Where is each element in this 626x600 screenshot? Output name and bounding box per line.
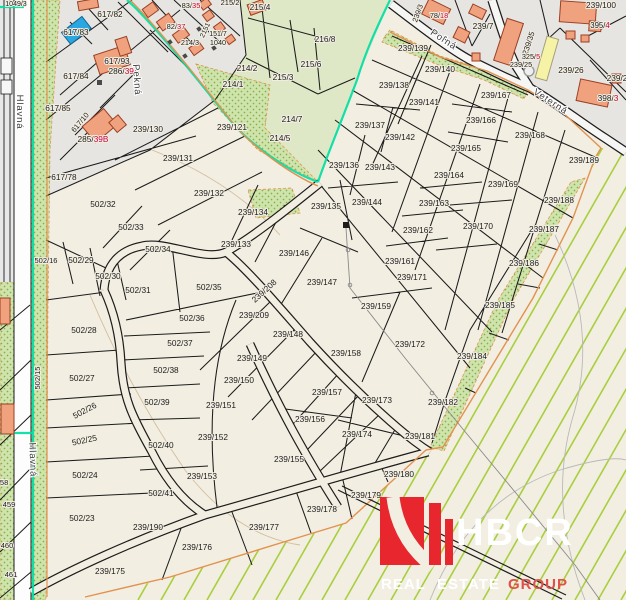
parcel-label: 83/35 — [182, 1, 201, 10]
parcel-label: 502/33 — [118, 222, 144, 232]
parcel-label: 239/161 — [385, 256, 415, 266]
cadastral-map: 1049/3617/82617/83617/93286/39A617/84617… — [0, 0, 626, 600]
parcel-label: 214/2 — [237, 63, 258, 73]
parcel-label: 239/179 — [351, 490, 381, 500]
street-label: Pekná — [130, 64, 143, 96]
parcel-label: 502/38 — [153, 365, 179, 375]
parcel-label: 239/135 — [311, 201, 341, 211]
parcel-label: 239/178 — [307, 504, 337, 514]
parcel-label: 239/180 — [384, 469, 414, 479]
parcel-label: 239/159 — [361, 301, 391, 311]
parcel-label: 461 — [5, 570, 18, 579]
parcel-label: 239/140 — [425, 64, 455, 74]
parcel-label: 239/182 — [428, 397, 458, 407]
parcel-label: 239/174 — [342, 429, 372, 439]
parcel-label: 239/175 — [95, 566, 125, 576]
parcel-label: 239/157 — [312, 387, 342, 397]
parcel-label: 239/190 — [133, 522, 163, 532]
parcel-label: 239/163 — [419, 198, 449, 208]
parcel-label: 617/82 — [97, 9, 123, 19]
parcel-label: 239/167 — [481, 90, 511, 100]
parcel-label: 239/151 — [206, 400, 236, 410]
parcel-label: 502/28 — [71, 325, 97, 335]
parcel-label: 239/146 — [279, 248, 309, 258]
parcel-label: 502/35 — [196, 282, 222, 292]
parcel-label: 239/164 — [434, 170, 464, 180]
parcel-label: 239/184 — [457, 351, 487, 361]
street-label: Hlavná — [26, 442, 38, 477]
parcel-label: 1040 — [210, 38, 226, 47]
parcel-label: 239/150 — [224, 375, 254, 385]
parcel-label: 239/153 — [187, 471, 217, 481]
parcel-label: 239/136 — [329, 160, 359, 170]
parcel-label: 239/137 — [355, 120, 385, 130]
parcel-label: 502/39 — [144, 397, 170, 407]
parcel-label: 214/1 — [223, 79, 244, 89]
parcel-label: 239/131 — [163, 153, 193, 163]
parcel-label: 239/185 — [485, 300, 515, 310]
parcel-label: 502/29 — [68, 255, 94, 265]
parcel-label: 502/40 — [148, 440, 174, 450]
parcel-label: 239/165 — [451, 143, 481, 153]
parcel-label: 502/37 — [167, 338, 193, 348]
parcel-label: 502/34 — [145, 244, 171, 254]
parcel-label: 239/2 — [607, 73, 626, 83]
parcel-label: 239/187 — [529, 224, 559, 234]
parcel-label: 617/85 — [45, 103, 71, 113]
parcel-label: 216/8 — [315, 34, 336, 44]
parcel-label: 239/166 — [466, 115, 496, 125]
parcel-label: 239/189 — [569, 155, 599, 165]
parcel-label: 215/6 — [301, 59, 322, 69]
parcel-label: 502/27 — [69, 373, 95, 383]
parcel-label: 239/138 — [379, 80, 409, 90]
parcel-label: 239/134 — [238, 207, 268, 217]
parcel-label: 458 — [0, 478, 8, 487]
parcel-label: 239/177 — [249, 522, 279, 532]
parcel-label: 215/2 — [221, 0, 240, 7]
logo-word-estate: ESTATE — [437, 576, 500, 593]
parcel-label: 239/144 — [352, 197, 382, 207]
parcel-label: 1049/3 — [5, 1, 27, 8]
parcel-label: 398/3 — [598, 93, 619, 103]
parcel-label: 239/152 — [198, 432, 228, 442]
parcel-label: 239/170 — [463, 221, 493, 231]
parcel-label: 214/7 — [282, 114, 303, 124]
parcel-label: 239/141 — [409, 97, 439, 107]
parcel-label: 617/93 — [104, 56, 130, 66]
building — [1, 58, 12, 74]
parcel-label: 617/78 — [51, 172, 77, 182]
parcel-label: 239/181 — [405, 431, 435, 441]
logo-word-real: REAL — [381, 576, 426, 593]
parcel-label: 239/142 — [385, 132, 415, 142]
parcel-label: 239/209 — [239, 310, 269, 320]
parcel-label: 502/32 — [90, 199, 116, 209]
parcel-label: 215/4 — [250, 2, 271, 12]
parcel-label: 239/26 — [558, 65, 584, 75]
parcel-label: 502/31 — [125, 285, 151, 295]
parcel-label: 239/155 — [274, 454, 304, 464]
parcel-label: 502/24 — [72, 470, 98, 480]
parcel-label: 239/156 — [295, 414, 325, 424]
parcel-label: 285/39B — [78, 134, 109, 144]
building — [1, 80, 12, 94]
logo-word-group: GROUP — [508, 576, 568, 593]
parcel-label: 239/130 — [133, 124, 163, 134]
map-canvas: 1049/3617/82617/83617/93286/39A617/84617… — [0, 0, 626, 600]
parcel-label: 502/23 — [69, 513, 95, 523]
logo-brand-text: HBCR — [456, 512, 574, 554]
parcel-label: 239/148 — [273, 329, 303, 339]
street-label: Hlavná — [14, 95, 25, 130]
parcel-label: 239/158 — [331, 348, 361, 358]
parcel-label: 239/188 — [544, 195, 574, 205]
parcel-label: 239/147 — [307, 277, 337, 287]
parcel-label: 617/84 — [63, 71, 89, 81]
parcel-label: 239/169 — [488, 179, 518, 189]
parcel-label: 78/18 — [430, 11, 448, 20]
parcel-label: 502/41 — [148, 488, 174, 498]
hlavna-road — [14, 0, 31, 600]
parcel-label: 239/143 — [365, 162, 395, 172]
parcel-label: 239/186 — [509, 258, 539, 268]
parcel-label: 395/4 — [590, 21, 610, 30]
parcel-label: 502/16 — [35, 256, 58, 265]
parcel-label: 239/168 — [515, 130, 545, 140]
parcel-label: 239/162 — [403, 225, 433, 235]
parcel-label: 239/172 — [395, 339, 425, 349]
parcel-label: 502/36 — [179, 313, 205, 323]
parcel-label: 239/25 — [510, 60, 532, 69]
parcel-label: 239/149 — [237, 353, 267, 363]
parcel-label: 215/3 — [273, 72, 294, 82]
parcel-label: 239/176 — [182, 542, 212, 552]
parcel-label: 617/83 — [63, 27, 89, 37]
parcel-label: 239/132 — [194, 188, 224, 198]
parcel-label: 239/139 — [398, 43, 428, 53]
parcel-label: 239/121 — [217, 122, 247, 132]
monument-symbol — [343, 222, 349, 228]
parcel-label: 82/37 — [167, 22, 186, 31]
parcel-label: 239/100 — [586, 0, 616, 10]
parcel-label: 214/5 — [270, 133, 291, 143]
railway-strip — [0, 0, 14, 282]
parcel-label: 151/7 — [209, 31, 227, 38]
hbcr-logo: HBCR REAL ESTATE GROUP — [380, 497, 574, 593]
parcel-label: 214/3 — [181, 38, 199, 47]
parcel-label: 239/7 — [473, 21, 494, 31]
parcel-label: 459 — [3, 500, 16, 509]
parcel-label: 502/15 — [33, 367, 42, 390]
parcel-label: 460 — [1, 541, 14, 550]
parcel-label: 239/171 — [397, 272, 427, 282]
parcel-label: 502/30 — [95, 271, 121, 281]
parcel-label: 239/133 — [221, 239, 251, 249]
parcel-label: 239/173 — [362, 395, 392, 405]
